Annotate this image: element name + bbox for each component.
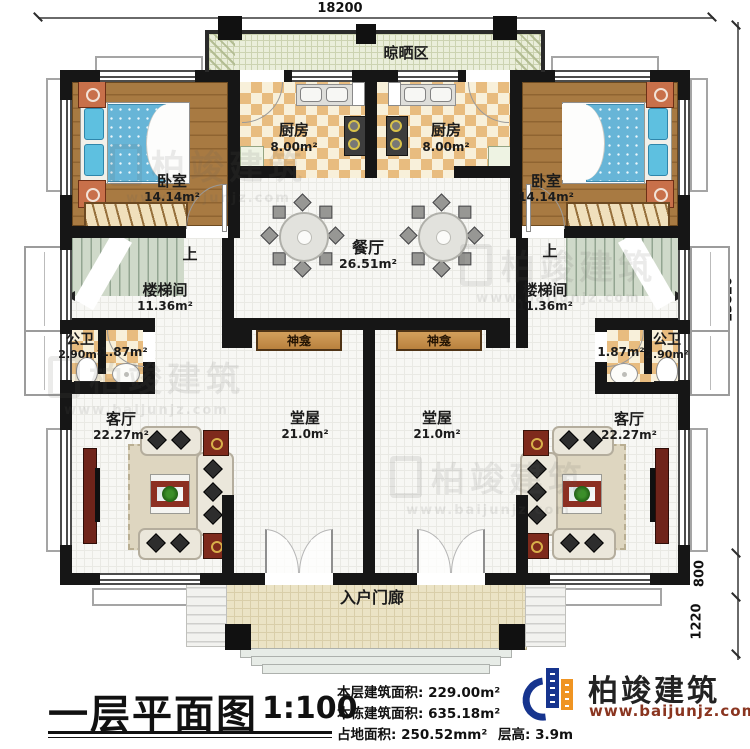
kitchen-right-name: 厨房 — [431, 121, 461, 139]
kitchen-left-area: 8.00m² — [270, 140, 317, 154]
brand-url-text: www.baijunjz.com — [589, 702, 750, 720]
room-area-hall-left: 21.0m² — [281, 428, 328, 440]
info-floor-area-text: 本层建筑面积: 229.00m² — [337, 685, 500, 701]
room-area-bedroom-right: 14.14m² — [518, 191, 574, 203]
up-label: 上 — [182, 245, 197, 263]
bay-window — [690, 246, 730, 332]
info-floor-height-text: 层高: 3.9m — [498, 727, 573, 743]
wall-segment — [228, 318, 252, 348]
up-label: 上 — [542, 242, 557, 260]
wardrobe — [84, 202, 188, 228]
window — [100, 70, 195, 82]
sofa-pillow — [560, 533, 580, 553]
sofa-pillow — [203, 482, 223, 502]
nightstand — [646, 80, 674, 108]
room-area-kitchen-right: 8.00m² — [422, 141, 469, 153]
room-label-dining: 餐厅 — [352, 240, 384, 256]
room-area-dining: 26.51m² — [339, 258, 397, 271]
living-right-name: 客厅 — [614, 410, 644, 428]
bay-window — [24, 246, 64, 332]
room-label-bedroom-right: 卧室 — [531, 174, 561, 189]
room-label-living-right: 客厅 — [614, 412, 644, 427]
vestibule-area-left: 1.87m² — [100, 346, 147, 358]
wall-segment — [516, 495, 528, 573]
tv — [650, 468, 655, 522]
window — [678, 430, 690, 545]
door-leaf — [352, 82, 365, 106]
room-label-hall-right: 堂屋 — [422, 411, 452, 426]
room-area-hall-right: 21.0m² — [413, 428, 460, 440]
dining-name: 餐厅 — [352, 238, 384, 257]
room-area-bath-right: 2.90m² — [645, 349, 688, 360]
wall-segment — [365, 70, 377, 178]
chair — [319, 205, 332, 218]
window — [100, 573, 200, 585]
window-sill — [690, 428, 708, 552]
nightstand — [78, 80, 106, 108]
chair — [458, 205, 471, 218]
stove-burner — [348, 138, 360, 150]
window — [678, 250, 690, 320]
dimension-line-top — [38, 17, 714, 19]
info-building-area: 本栋建筑面积: 635.18m² — [337, 702, 500, 722]
sofa-pillow — [527, 482, 547, 502]
bath-right-vestibule-area: 1.87m² — [597, 345, 644, 359]
sink-basin — [404, 87, 426, 102]
chair — [272, 205, 285, 218]
window — [60, 100, 72, 195]
wall-segment — [595, 318, 690, 330]
wall-segment — [222, 495, 234, 573]
stove-burner — [390, 138, 402, 150]
dimension-tick — [731, 548, 741, 558]
brand-logo-icon — [523, 668, 581, 724]
living-left-name: 客厅 — [106, 410, 136, 428]
dimension-right-step: 800 — [693, 550, 708, 598]
sofa-pillow — [147, 430, 167, 450]
room-label-porch: 入户门廊 — [340, 590, 404, 606]
bath-right-name: 公卫 — [653, 332, 681, 348]
plant — [574, 486, 590, 502]
bath-left-vestibule-area: 1.87m² — [100, 345, 147, 359]
sofa-pillow — [559, 430, 579, 450]
door-opening — [240, 70, 284, 82]
bedroom-right-name: 卧室 — [531, 172, 561, 190]
chair — [411, 205, 424, 218]
title-underline — [48, 731, 332, 734]
window — [292, 70, 352, 82]
sofa-pillow — [584, 533, 604, 553]
dimension-tick — [731, 649, 741, 659]
room-area-bedroom-left: 14.14m² — [144, 191, 200, 203]
sofa — [138, 528, 202, 560]
porch-name: 入户门廊 — [340, 588, 404, 607]
wall-segment — [240, 166, 296, 178]
window — [555, 70, 650, 82]
shrine-left: 神龛 — [256, 330, 342, 351]
coffee-table — [562, 474, 602, 514]
window-sill — [690, 78, 708, 192]
sofa — [552, 528, 616, 560]
sink-basin — [326, 87, 348, 102]
stove-burner — [390, 120, 402, 132]
drying-area-wall — [541, 30, 545, 72]
sofa-pillow — [146, 533, 166, 553]
chair — [411, 252, 424, 265]
hall-right-name: 堂屋 — [422, 409, 452, 427]
stair-right-name: 楼梯间 — [522, 281, 567, 299]
column — [218, 16, 242, 40]
dimension-top-width: 18200 — [302, 1, 378, 16]
door-leaf — [222, 184, 227, 232]
dimension-line-right — [737, 22, 739, 660]
sofa-pillow — [527, 459, 547, 479]
room-area-stair-right: 11.36m² — [517, 300, 573, 312]
stair-left-area: 11.36m² — [137, 299, 193, 313]
sofa-pillow — [583, 430, 603, 450]
column — [493, 16, 517, 40]
room-label-drying-area: 晾晒区 — [383, 46, 428, 61]
stair-left-up-label: 上 — [182, 247, 197, 262]
drying-area-name: 晾晒区 — [383, 44, 428, 62]
logo-building-blue — [546, 668, 559, 708]
pillow — [648, 108, 668, 140]
coffee-table — [150, 474, 190, 514]
vestibule-area-right: 1.87m² — [597, 346, 644, 358]
column — [225, 624, 251, 650]
bed-sheet — [562, 104, 605, 180]
shrine-left-label: 神龛 — [287, 332, 311, 349]
sofa — [140, 426, 202, 456]
bedroom-left-name: 卧室 — [157, 172, 187, 190]
bed-sheet — [146, 104, 189, 180]
wall-segment — [363, 318, 375, 573]
wall-segment — [595, 382, 690, 394]
room-label-stair-left: 楼梯间 — [142, 283, 187, 298]
chair — [272, 252, 285, 265]
floor-plan-canvas: 18200 13820 800 1220 — [0, 0, 750, 749]
room-area-kitchen-left: 8.00m² — [270, 141, 317, 153]
round-table — [418, 212, 468, 262]
info-footprint-area-text: 占地面积: 250.52mm² — [337, 727, 487, 743]
kitchen-right-area: 8.00m² — [422, 140, 469, 154]
pillow — [84, 108, 104, 140]
shrine-right-label: 神龛 — [427, 332, 451, 349]
dimension-tick — [731, 592, 741, 602]
bath-right-area: 2.90m² — [645, 348, 688, 361]
living-left-area: 22.27m² — [93, 428, 149, 442]
bay-window — [690, 330, 730, 396]
wall-segment — [60, 318, 155, 330]
info-floor-area: 本层建筑面积: 229.00m² — [337, 681, 500, 701]
bay-window — [24, 330, 64, 396]
plant — [162, 486, 178, 502]
room-area-stair-left: 11.36m² — [137, 300, 193, 312]
stair-left-name: 楼梯间 — [142, 281, 187, 299]
logo-building-orange — [561, 679, 573, 710]
dimension-tick — [731, 20, 741, 30]
room-area-living-right: 22.27m² — [601, 429, 657, 441]
shrine-right: 神龛 — [396, 330, 482, 351]
hall-left-name: 堂屋 — [290, 409, 320, 427]
room-label-living-left: 客厅 — [106, 412, 136, 427]
column — [356, 24, 376, 44]
tv — [95, 468, 100, 522]
tv-cabinet — [655, 448, 669, 544]
window — [550, 573, 650, 585]
sink-basin — [300, 87, 322, 102]
bath-left-name: 公卫 — [66, 332, 94, 348]
door-opening — [466, 70, 510, 82]
wardrobe — [566, 202, 670, 228]
hall-left-area: 21.0m² — [281, 427, 328, 441]
info-floor-height: 层高: 3.9m — [498, 723, 573, 743]
wall-segment — [510, 70, 522, 238]
hall-right-area: 21.0m² — [413, 427, 460, 441]
info-building-area-text: 本栋建筑面积: 635.18m² — [337, 706, 500, 722]
side-steps — [186, 577, 227, 647]
bedroom-left-area: 14.14m² — [144, 190, 200, 204]
wall-segment — [228, 70, 240, 238]
sofa-pillow — [527, 505, 547, 525]
sofa-pillow — [203, 459, 223, 479]
dining-area: 26.51m² — [339, 256, 397, 271]
window — [398, 70, 458, 82]
wall-segment — [454, 166, 510, 178]
door-opening — [417, 573, 485, 585]
drying-area-wall — [205, 30, 209, 72]
room-label-bedroom-left: 卧室 — [157, 174, 187, 189]
pillow — [84, 144, 104, 176]
wall-segment — [486, 318, 510, 348]
sofa-pillow — [203, 505, 223, 525]
side-steps — [525, 577, 566, 647]
door-opening — [265, 573, 333, 585]
room-label-stair-right: 楼梯间 — [522, 283, 567, 298]
sink-basin — [430, 87, 452, 102]
bedroom-right-area: 14.14m² — [518, 190, 574, 204]
pillow — [648, 144, 668, 176]
stove-burner — [348, 120, 360, 132]
stair-right-up-label: 上 — [542, 244, 557, 259]
side-table — [203, 430, 229, 456]
window — [678, 100, 690, 195]
room-area-living-left: 22.27m² — [93, 429, 149, 441]
step — [262, 664, 490, 674]
living-right-area: 22.27m² — [601, 428, 657, 442]
window — [60, 250, 72, 320]
title-underline — [48, 737, 332, 738]
room-area-bath-left: 2.90m² — [58, 349, 101, 360]
sofa-pillow — [171, 430, 191, 450]
room-label-hall-left: 堂屋 — [290, 411, 320, 426]
drying-area-hatch — [515, 34, 541, 70]
kitchen-left-name: 厨房 — [279, 121, 309, 139]
stair-right-area: 11.36m² — [517, 299, 573, 313]
brand-url: www.baijunjz.com — [589, 702, 750, 720]
window — [60, 430, 72, 545]
sofa-pillow — [170, 533, 190, 553]
door-leaf — [388, 82, 401, 106]
side-table — [523, 430, 549, 456]
info-footprint-area: 占地面积: 250.52mm² — [337, 723, 487, 743]
wall-segment — [60, 382, 155, 394]
room-label-bath-right: 公卫 — [653, 333, 681, 347]
column — [499, 624, 525, 650]
room-label-bath-left: 公卫 — [66, 333, 94, 347]
dimension-right-porch: 1220 — [690, 596, 705, 648]
bath-left-area: 2.90m² — [58, 348, 101, 361]
round-table — [279, 212, 329, 262]
room-label-kitchen-right: 厨房 — [431, 123, 461, 138]
room-label-kitchen-left: 厨房 — [279, 123, 309, 138]
